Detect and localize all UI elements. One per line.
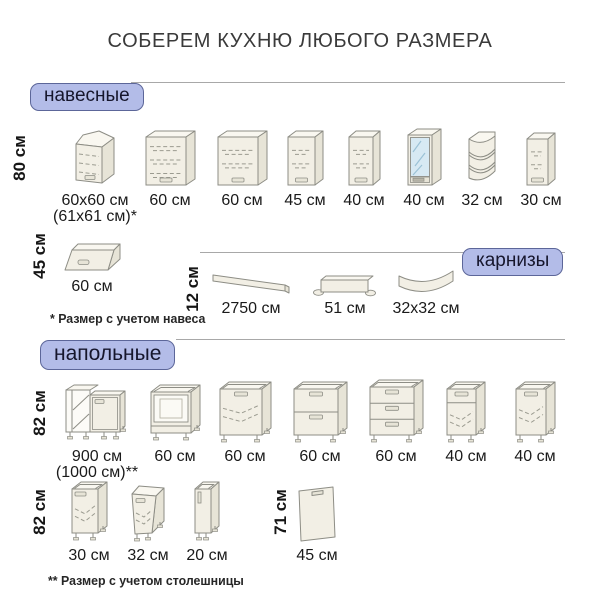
kitchen-catalog-page: СОБЕРЕМ КУХНЮ ЛЮБОГО РАЗМЕРА навесные 80… — [0, 0, 600, 600]
height-label-wall-45: 45 см — [30, 233, 50, 279]
size-label: 60 см — [375, 448, 416, 465]
size-label: 60 см — [221, 192, 262, 209]
size-label: 60 см — [299, 448, 340, 465]
size-label: 60 см — [224, 448, 265, 465]
slim-base-cabinet-20-icon — [194, 481, 220, 542]
size-label: 40 см — [343, 192, 384, 209]
door-base-cabinet-30-icon — [71, 481, 108, 542]
cornice-curved-icon — [397, 267, 455, 297]
liftup-wall-cabinet-icon — [63, 240, 121, 274]
size-label: 60 см — [154, 448, 195, 465]
size-label-secondary: (1000 см)** — [56, 464, 138, 481]
height-label-floor-82a: 82 см — [30, 390, 50, 436]
size-label: 32x32 см — [392, 300, 459, 317]
open-corner-shelf-icon — [467, 130, 497, 186]
door-base-cabinet-40-icon — [515, 381, 556, 444]
wall-cabinet-30-icon — [526, 132, 556, 186]
size-label: 45 см — [284, 192, 325, 209]
size-label: 30 см — [68, 547, 109, 564]
corner-wall-cabinet-icon — [74, 128, 116, 186]
size-label: 32 см — [127, 547, 168, 564]
three-drawer-base-cabinet-icon — [369, 379, 424, 444]
height-label-cornice-12: 12 см — [183, 266, 203, 312]
footnote-floor: ** Размер с учетом столешницы — [48, 573, 244, 588]
page-title: СОБЕРЕМ КУХНЮ ЛЮБОГО РАЗМЕРА — [0, 30, 600, 53]
size-label: 32 см — [461, 192, 502, 209]
floor-section-divider — [176, 339, 565, 340]
size-label-secondary: (61x61 см)* — [53, 208, 137, 225]
height-label-floor-82b: 82 см — [30, 489, 50, 535]
size-label: 2750 см — [221, 300, 280, 317]
size-label: 51 см — [324, 300, 365, 317]
wall-cabinet-60-3shelf-icon — [145, 130, 196, 186]
height-label-panel-71: 71 см — [271, 489, 291, 535]
glass-door-wall-cabinet-icon — [407, 128, 442, 186]
size-label: 900 см — [72, 448, 122, 465]
drawer-door-base-cabinet-40-icon — [446, 381, 486, 444]
size-label: 60 см — [71, 278, 112, 295]
section-badge-cornices: карнизы — [462, 248, 563, 276]
size-label: 20 см — [186, 547, 227, 564]
wall-cabinet-45-icon — [287, 130, 324, 186]
angled-end-base-cabinet-32-icon — [130, 482, 166, 542]
door-panel-45-icon — [295, 484, 339, 544]
size-label: 40 см — [403, 192, 444, 209]
size-label: 45 см — [296, 547, 337, 564]
wall-cabinet-40-icon — [348, 130, 381, 186]
size-label: 60 см — [149, 192, 190, 209]
size-label: 30 см — [520, 192, 561, 209]
cornice-long-icon — [211, 271, 291, 297]
wall-section-divider — [131, 82, 565, 83]
oven-base-cabinet-icon — [149, 382, 202, 444]
section-badge-floor-cabinets: напольные — [40, 340, 175, 370]
size-label: 40 см — [445, 448, 486, 465]
two-drawer-base-cabinet-icon — [293, 381, 348, 444]
corner-sink-base-cabinet-icon — [64, 382, 130, 444]
wall-cabinet-60-2shelf-icon — [217, 130, 268, 186]
size-label: 40 см — [514, 448, 555, 465]
door-base-cabinet-60-icon — [219, 381, 272, 444]
section-badge-wall-cabinets: навесные — [30, 83, 144, 111]
footnote-wall: * Размер с учетом навеса — [50, 311, 205, 326]
size-label: 60x60 см — [61, 192, 128, 209]
height-label-wall-80: 80 см — [10, 135, 30, 181]
cornice-straight-icon — [313, 273, 377, 297]
